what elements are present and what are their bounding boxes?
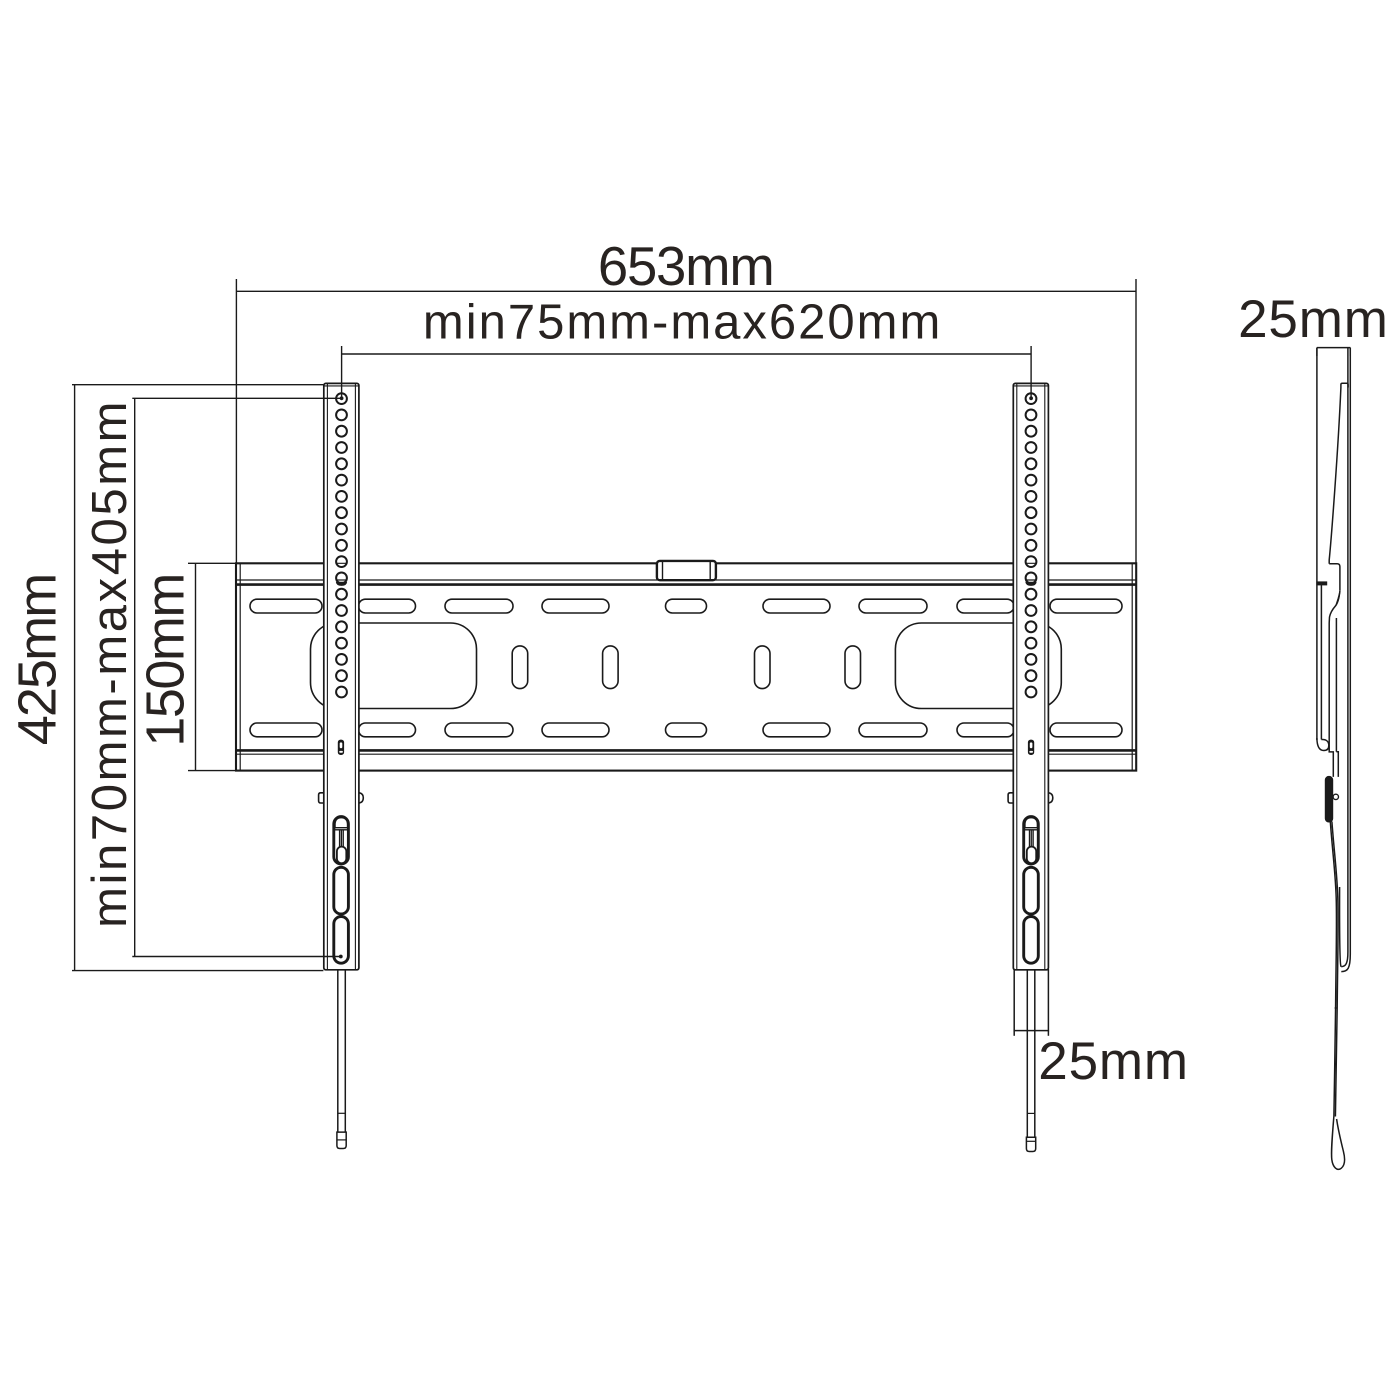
svg-text:25mm: 25mm (1038, 1032, 1189, 1091)
svg-text:25mm: 25mm (1238, 290, 1389, 349)
svg-text:min75mm-max620mm: min75mm-max620mm (423, 295, 942, 349)
svg-text:425mm: 425mm (7, 575, 67, 746)
svg-text:653mm: 653mm (598, 236, 774, 297)
svg-text:150mm: 150mm (136, 574, 196, 747)
svg-text:min70mm-max405mm: min70mm-max405mm (83, 399, 137, 928)
